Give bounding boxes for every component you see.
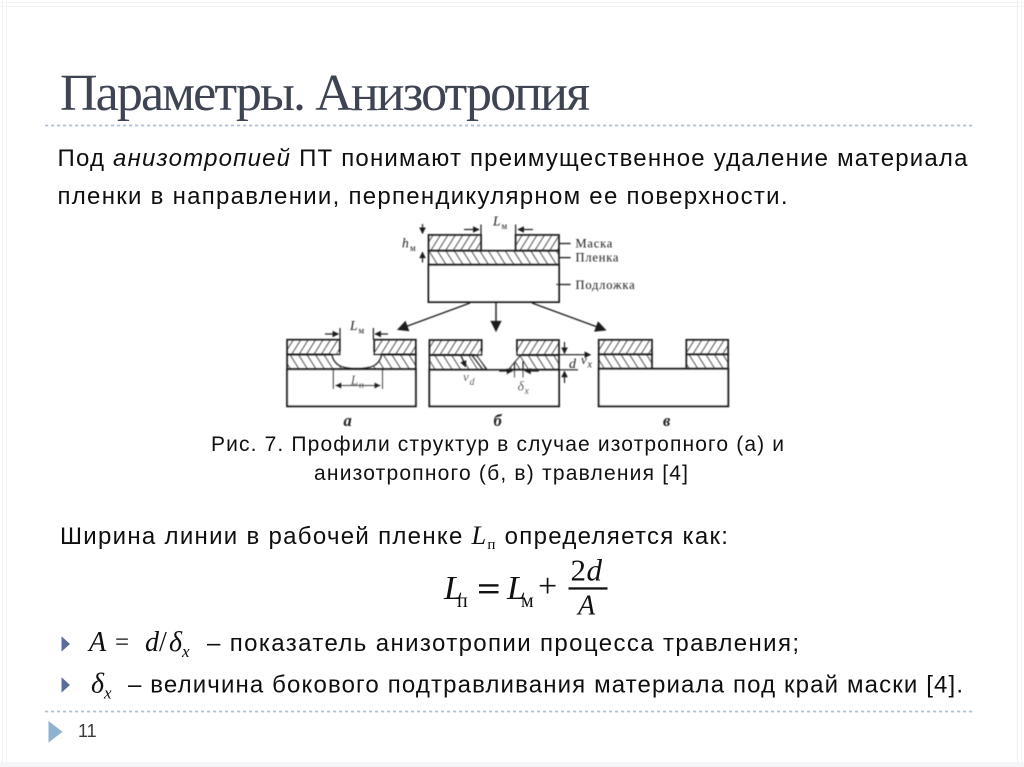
svg-text:x: x <box>181 642 190 661</box>
svg-text:п: п <box>457 590 468 612</box>
svg-text:Подложка: Подложка <box>576 278 636 292</box>
svg-text:+: + <box>538 568 557 605</box>
svg-text:м: м <box>410 243 416 253</box>
svg-text:d: d <box>145 627 160 658</box>
svg-text:h: h <box>402 236 409 251</box>
svg-text:б: б <box>494 411 503 430</box>
svg-text:м: м <box>359 326 365 336</box>
svg-text:v: v <box>581 352 587 367</box>
svg-text:x: x <box>524 386 530 397</box>
svg-text:м: м <box>502 221 508 231</box>
svg-text:δ: δ <box>169 627 183 658</box>
svg-text:Маска: Маска <box>576 237 614 251</box>
svg-text:δ: δ <box>91 669 105 700</box>
svg-text:Рис. 7. Профили структур в слу: Рис. 7. Профили структур в случае изотро… <box>211 433 784 456</box>
svg-text:/: / <box>159 627 167 658</box>
svg-text:м: м <box>521 590 534 612</box>
svg-text:Пленка: Пленка <box>576 251 620 265</box>
svg-text:L: L <box>350 373 359 388</box>
svg-text:x: x <box>103 684 112 703</box>
svg-text:A: A <box>87 627 107 658</box>
svg-text:пленки в направлении, перпенди: пленки в направлении, перпендикулярном е… <box>58 183 788 210</box>
svg-text:2d: 2d <box>571 553 603 588</box>
svg-text:v: v <box>463 369 469 384</box>
svg-text:Параметры. Анизотропия: Параметры. Анизотропия <box>60 65 590 122</box>
svg-text:анизотропного (б, в) травления: анизотропного (б, в) травления [4] <box>314 462 688 485</box>
svg-text:Под анизотропией ПТ понимают п: Под анизотропией ПТ понимают преимуществ… <box>58 145 969 172</box>
svg-text:– показатель анизотропии проце: – показатель анизотропии процесса травле… <box>207 630 799 657</box>
svg-text:L: L <box>349 318 358 333</box>
svg-text:=: = <box>115 629 129 656</box>
svg-text:11: 11 <box>78 721 97 741</box>
svg-text:а: а <box>344 411 352 430</box>
svg-text:в: в <box>663 411 671 430</box>
svg-text:Ширина линии в рабочей пленке: Ширина линии в рабочей пленке Lп определ… <box>60 521 729 553</box>
svg-text:L: L <box>492 214 501 229</box>
svg-text:d: d <box>569 357 577 372</box>
svg-text:п: п <box>359 380 364 390</box>
svg-text:– величина бокового подтравлив: – величина бокового подтравливания матер… <box>128 672 963 699</box>
svg-text:δ: δ <box>518 380 525 395</box>
svg-text:A: A <box>576 591 596 622</box>
svg-text:x: x <box>587 360 593 371</box>
